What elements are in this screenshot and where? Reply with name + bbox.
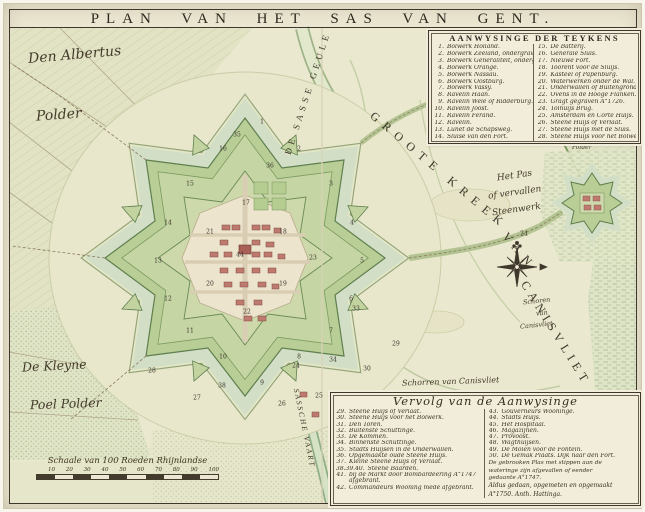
legend-entry-text: Generale Sluis.: [551, 51, 597, 58]
legend-entry: 23.Gragt gegraven A°1726.: [538, 99, 637, 106]
scalebar-caption: Schaale van 100 Roeden Rhijnlandse: [30, 456, 225, 466]
map-marker: 35: [233, 132, 241, 139]
legend-top-header: AANWYSINGE DER TEYKENS: [429, 31, 640, 43]
legend-entry-text: Bolwerk Holland.: [447, 44, 500, 51]
legend-entry: 18.Toorent voor de Sluijs.: [538, 65, 637, 72]
legend-entry-number: 10.: [434, 106, 444, 113]
legend-bottom-col2: 43.Gouverneurs Wooninge.44.Stadts Huijs.…: [484, 409, 637, 498]
map-marker: 16: [219, 146, 227, 153]
legend-entry-text: Kasteel of Papenburg.: [551, 72, 618, 79]
legend-entry-number: 8.: [434, 92, 444, 99]
legend-entry: 50.De Gemak Plaats. Dijk naar den Fort.: [489, 453, 637, 459]
legend-entry-number: 15.: [538, 44, 548, 51]
map-marker: 36: [266, 163, 274, 170]
label-kleyne-poel-2: Poel Polder: [30, 397, 102, 412]
legend-entry: 15.De Batterij.: [538, 44, 637, 51]
legend-entry-number: 17.: [538, 58, 548, 65]
scalebar-tick-label: 80: [173, 467, 180, 473]
map-marker: 5: [360, 258, 364, 265]
legend-entry: 4.Bolwerk Orange.: [434, 65, 533, 72]
map-marker: 2: [297, 146, 301, 153]
legend-entry-text: Bolwerk Oostburg.: [447, 79, 504, 86]
map-marker: 21: [206, 229, 214, 236]
scalebar-tick-label: 60: [137, 467, 144, 473]
legend-note-line: gedaante A°1747.: [489, 475, 637, 481]
legend-entry-number: 41.: [336, 472, 346, 485]
legend-entry-text: Ravelin Ferand.: [447, 113, 495, 120]
legend-entry: 1.Bolwerk Holland.: [434, 44, 533, 51]
scalebar-tick-label: 70: [155, 467, 162, 473]
scalebar-segment: [91, 475, 109, 479]
map-marker: 24: [292, 363, 300, 370]
scalebar-segment: [109, 475, 127, 479]
legend-entry-text: Bolwerk Nassau.: [447, 72, 498, 79]
map-marker: 25: [315, 393, 323, 400]
legend-entry-number: 22.: [538, 92, 548, 99]
legend-top-col1: 1.Bolwerk Holland.2.Bolwerk Zeeland, ond…: [434, 44, 533, 141]
scalebar-segment: [164, 475, 182, 479]
legend-entry-number: 3.: [434, 58, 444, 65]
legend-entry: 41.bij de Markt door Bombardeering A°174…: [336, 472, 484, 485]
legend-entry-text: Ravelin Haan.: [447, 92, 490, 99]
legend-entry-number: 25.: [538, 113, 548, 120]
legend-entry-text: Amsterdam en Corte Huijs.: [551, 113, 634, 120]
legend-entry-number: 27.: [538, 127, 548, 134]
map-marker: 12: [164, 296, 172, 303]
legend-entry-number: 24.: [538, 106, 548, 113]
legend-entry-number: 5.: [434, 72, 444, 79]
map-marker: 29: [392, 341, 400, 348]
legend-entry: 8.Ravelin Haan.: [434, 92, 533, 99]
legend-entry-text: De Gemak Plaats. Dijk naar den Fort.: [502, 453, 616, 459]
legend-entry: 42.Commandeurs Wooning mede afgebrant.: [336, 485, 484, 491]
legend-box-top: AANWYSINGE DER TEYKENS 1.Bolwerk Holland…: [428, 30, 641, 144]
legend-entry-text: Gragt gegraven A°1726.: [551, 99, 625, 106]
legend-entry: 17.Nieuwe Fort.: [538, 58, 637, 65]
map-marker: 28: [148, 368, 156, 375]
legend-entry: 6.Bolwerk Oostburg.: [434, 79, 533, 86]
scalebar-segment: [127, 475, 145, 479]
map-marker: 10: [219, 354, 227, 361]
label-auwrijk-polder-2: Polder: [572, 145, 592, 151]
legend-entry-text: Bolwerk Generaliteit, onderg.: [447, 58, 533, 65]
map-marker: 1: [260, 119, 264, 126]
legend-entry-text: Toorent voor de Sluijs.: [551, 65, 620, 72]
map-marker: 13: [154, 258, 162, 265]
legend-entry-text: Ravelin Joost.: [447, 106, 489, 113]
scalebar-tick-label: 90: [191, 467, 198, 473]
legend-signature-line: A°1750. Anth. Hattinga.: [489, 492, 637, 499]
legend-entry-text: Ravelin Wele of Ridderburg.: [447, 99, 533, 106]
legend-entry-number: 19.: [538, 72, 548, 79]
map-marker: 30: [363, 366, 371, 373]
scalebar-tick-label: 10: [48, 467, 55, 473]
scalebar: Schaale van 100 Roeden Rhijnlandse 10203…: [30, 456, 225, 480]
map-title: PLAN VAN HET SAS VAN GENT.: [91, 11, 556, 27]
legend-entry-number: 2.: [434, 51, 444, 58]
scalebar-segment: [182, 475, 200, 479]
legend-entry-text: Tolhuijs Brug.: [551, 106, 593, 113]
legend-entry-text: De Batterij.: [551, 44, 586, 51]
scalebar-tick-label: 50: [119, 467, 126, 473]
legend-entry: 27.Steene Huijs met de Sluis.: [538, 127, 637, 134]
legend-entry-text: Commandeurs Wooning mede afgebrant.: [349, 485, 474, 491]
legend-entry: 22.Ovens in de Hooge Flanken.: [538, 92, 637, 99]
legend-entry-text: Ovens in de Hooge Flanken.: [551, 92, 637, 99]
scalebar-tick-label: 40: [101, 467, 108, 473]
map-marker: 20: [206, 281, 214, 288]
scalebar-tick-label: 20: [66, 467, 73, 473]
legend-entry-number: 4.: [434, 65, 444, 72]
legend-entry-text: Waterwerken onder de Wal.: [551, 79, 636, 86]
legend-entry: 13.Lunet de Schapsweg.: [434, 127, 533, 134]
legend-entry-text: Bolwerk Vassy.: [447, 85, 492, 92]
scalebar-segment: [37, 475, 55, 479]
scalebar-ticks: 102030405060708090100: [48, 467, 219, 473]
map-marker: 24: [520, 231, 528, 238]
legend-entry: 7.Bolwerk Vassy.: [434, 85, 533, 92]
scalebar-tick-label: 30: [84, 467, 91, 473]
legend-entry: 12.Ravelin.: [434, 120, 533, 127]
scalebar-segment: [55, 475, 73, 479]
scalebar-segment: [200, 475, 218, 479]
legend-entry: 25.Amsterdam en Corte Huijs.: [538, 113, 637, 120]
legend-entry-number: 13.: [434, 127, 444, 134]
legend-entry: 28.Steene Huijs voor het Bolwerk.: [538, 134, 637, 141]
legend-entry-number: 14.: [434, 134, 444, 141]
map-marker: 22: [243, 309, 251, 316]
map-marker: 34: [329, 357, 337, 364]
legend-entry-number: 50.: [489, 453, 499, 459]
legend-entry: 19.Kasteel of Papenburg.: [538, 72, 637, 79]
legend-entry-text: Sluise van den Fort.: [447, 134, 508, 141]
legend-entry: 2.Bolwerk Zeeland, ondergraven.: [434, 51, 533, 58]
legend-top-col2: 15.De Batterij.16.Generale Sluis.17.Nieu…: [533, 44, 637, 141]
legend-bottom-col1: 29.Steene Huijs of Verlaat.30.Steene Hui…: [336, 409, 484, 498]
label-albertus-polder-2: Polder: [36, 106, 83, 123]
legend-bottom-header: Vervolg van de Aanwysinge: [331, 393, 640, 408]
map-marker: 14: [164, 220, 172, 227]
legend-entry-number: 42.: [336, 485, 346, 491]
legend-entry-text: Lunet de Schapsweg.: [447, 127, 512, 134]
scalebar-segment: [73, 475, 91, 479]
legend-entry: 5.Bolwerk Nassau.: [434, 72, 533, 79]
map-marker: 4: [350, 220, 354, 227]
legend-entry: 14.Sluise van den Fort.: [434, 134, 533, 141]
legend-entry-number: 1.: [434, 44, 444, 51]
legend-entry-number: 26.: [538, 120, 548, 127]
legend-entry: 20.Waterwerken onder de Wal.: [538, 79, 637, 86]
scalebar-ruler: [36, 474, 219, 480]
map-marker: 15: [186, 181, 194, 188]
scalebar-segment: [146, 475, 164, 479]
legend-entry-number: 6.: [434, 79, 444, 86]
legend-note-line: De gebrooken Plas met stippen aan de: [489, 460, 637, 466]
title-band: PLAN VAN HET SAS VAN GENT.: [9, 10, 637, 28]
map-marker: 19: [279, 281, 287, 288]
map-marker: 23: [309, 255, 317, 262]
legend-entry: 24.Tolhuijs Brug.: [538, 106, 637, 113]
legend-entry: 9.Ravelin Wele of Ridderburg.: [434, 99, 533, 106]
map-marker: 6: [349, 296, 353, 303]
map-marker: 9: [260, 380, 264, 387]
map-marker: 33: [352, 306, 360, 313]
map-marker: 11: [186, 328, 194, 335]
legend-entry-number: 20.: [538, 79, 548, 86]
map-marker: 27: [193, 395, 201, 402]
map-marker: 44: [236, 252, 244, 259]
legend-entry-number: 21.: [538, 85, 548, 92]
legend-entry-text: bij de Markt door Bombardeering A°1747 a…: [349, 472, 484, 485]
legend-entry-number: 7.: [434, 85, 444, 92]
map-sheet-page: PLAN VAN HET SAS VAN GENT. Den Albertus …: [0, 0, 645, 512]
legend-entry-text: Nieuwe Fort.: [551, 58, 591, 65]
legend-entry-text: Steene Huijs of Verlaat.: [551, 120, 623, 127]
legend-entry-number: 9.: [434, 99, 444, 106]
legend-entry: 26.Steene Huijs of Verlaat.: [538, 120, 637, 127]
legend-entry: 21.Onderwallen of Buitengrond.: [538, 85, 637, 92]
legend-entry-number: 28.: [538, 134, 548, 141]
legend-entry-text: Bolwerk Zeeland, ondergraven.: [447, 51, 533, 58]
legend-entry-number: 12.: [434, 120, 444, 127]
legend-entry-text: Steene Huijs met de Sluis.: [551, 127, 631, 134]
map-marker: 17: [242, 200, 250, 207]
legend-entry-text: Steene Huijs voor het Bolwerk.: [551, 134, 637, 141]
legend-entry-text: Bolwerk Orange.: [447, 65, 499, 72]
legend-entry: 16.Generale Sluis.: [538, 51, 637, 58]
legend-entry: 3.Bolwerk Generaliteit, onderg.: [434, 58, 533, 65]
legend-entry: 10.Ravelin Joost.: [434, 106, 533, 113]
legend-note-line: wateringe zijn afgevallen of eender: [489, 468, 637, 474]
legend-entry-number: 16.: [538, 51, 548, 58]
map-marker: 8: [297, 354, 301, 361]
legend-entry-number: 23.: [538, 99, 548, 106]
scalebar-tick-label: 100: [208, 467, 219, 473]
legend-entry: 11.Ravelin Ferand.: [434, 113, 533, 120]
legend-box-bottom: Vervolg van de Aanwysinge 29.Steene Huij…: [330, 392, 641, 506]
legend-entry-text: Ravelin.: [447, 120, 472, 127]
map-marker: 38: [218, 383, 226, 390]
legend-signature-line: Aldus gedaan, opgemeten en opgemaakt: [489, 483, 637, 490]
map-marker: 26: [278, 401, 286, 408]
legend-entry-text: Onderwallen of Buitengrond.: [551, 85, 637, 92]
map-marker: 18: [279, 229, 287, 236]
label-kleyne-poel-1: De Kleyne: [22, 358, 87, 374]
map-marker: 3: [329, 181, 333, 188]
legend-entry-number: 11.: [434, 113, 444, 120]
map-marker: 7: [329, 328, 333, 335]
legend-entry-number: 18.: [538, 65, 548, 72]
